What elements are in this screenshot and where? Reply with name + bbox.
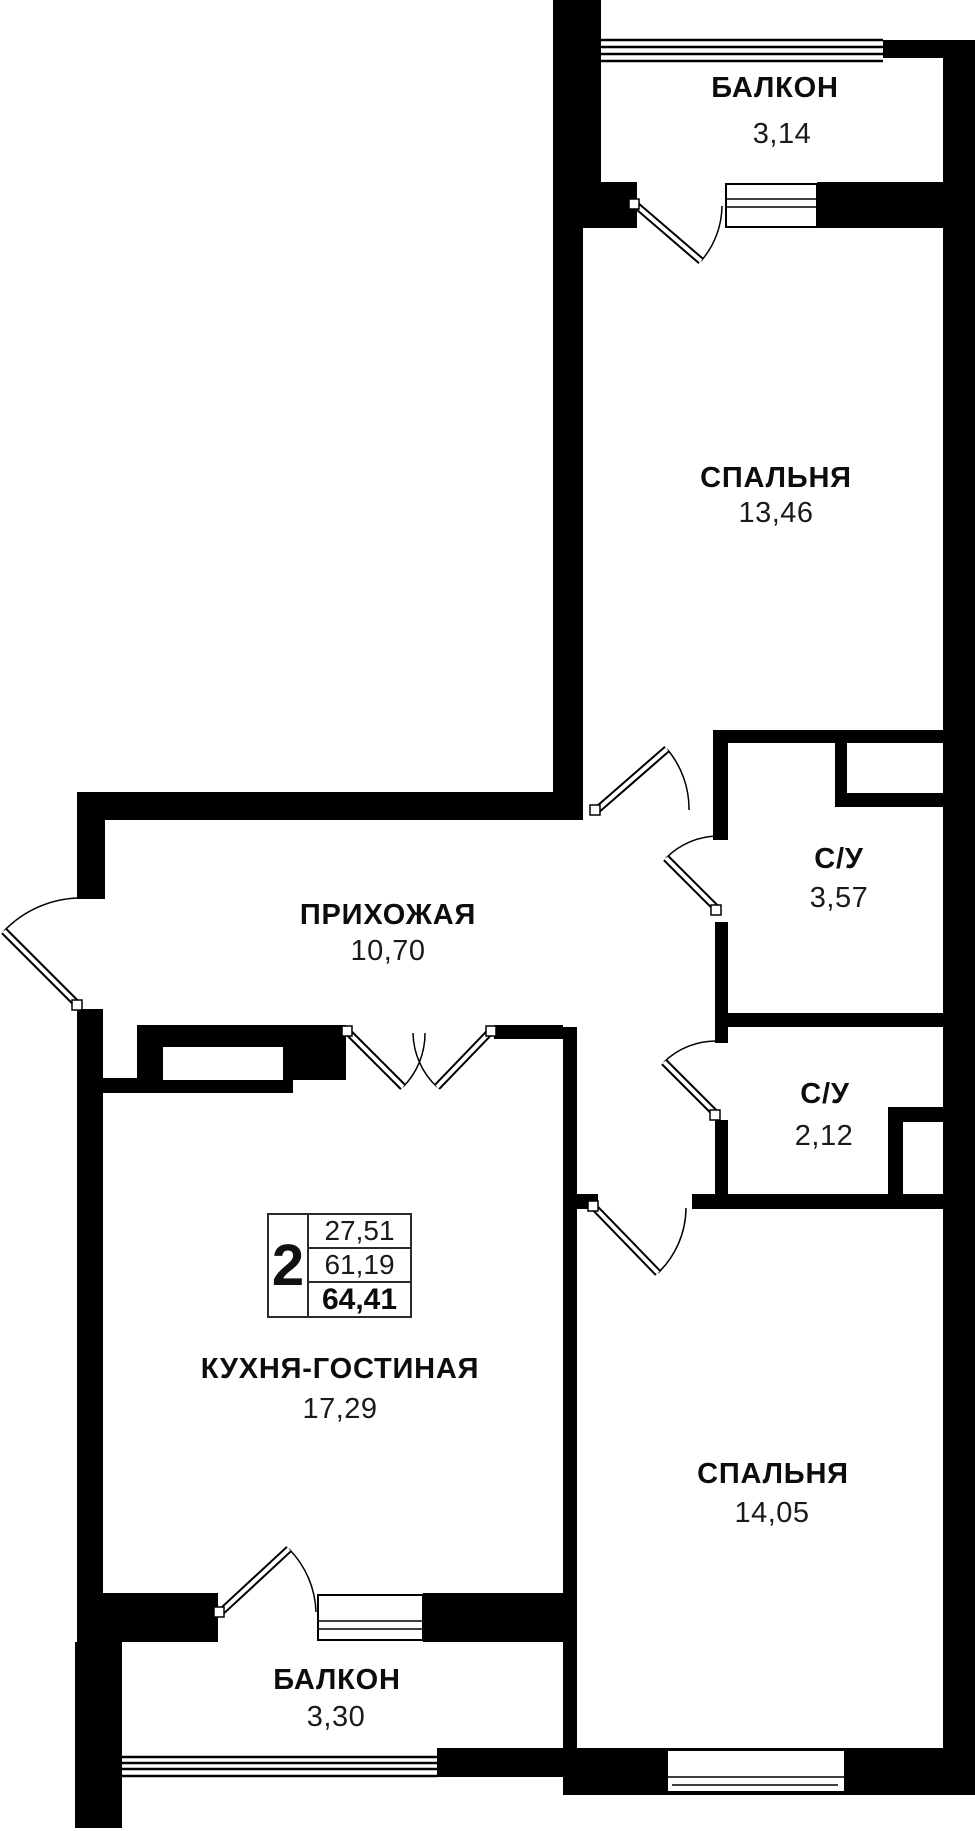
room-area-bathroom-2: 2,12 (795, 1122, 853, 1151)
door-bedroom-bottom (588, 1201, 686, 1273)
room-area-hallway: 10,70 (350, 937, 425, 966)
room-label-hallway: ПРИХОЖАЯ (300, 901, 476, 930)
room-area-bathroom-1: 3,57 (810, 884, 868, 913)
door-kitchen-double (342, 1026, 496, 1087)
room-area-balcony-top: 3,14 (753, 120, 811, 149)
legend-living-area: 27,51 (309, 1215, 410, 1247)
room-label-bathroom-1: С/У (814, 845, 863, 874)
door-balcony-top (629, 199, 722, 261)
room-area-bedroom-top: 13,46 (738, 499, 813, 528)
room-area-kitchen-living: 17,29 (302, 1395, 377, 1424)
window-bedroom-top (726, 184, 817, 227)
room-area-balcony-bottom: 3,30 (307, 1703, 365, 1732)
room-label-bedroom-top: СПАЛЬНЯ (700, 464, 852, 493)
door-balcony-bottom (214, 1549, 316, 1617)
window-kitchen (318, 1595, 423, 1640)
balcony-top-railing (601, 40, 883, 61)
walls (75, 0, 975, 1828)
room-label-bedroom-bottom: СПАЛЬНЯ (697, 1460, 849, 1489)
door-bathroom-1 (666, 836, 721, 915)
door-entry (4, 898, 82, 1010)
room-label-kitchen-living: КУХНЯ-ГОСТИНАЯ (201, 1355, 480, 1384)
area-legend: 2 27,51 61,19 64,41 (267, 1213, 412, 1318)
floor-plan: БАЛКОН 3,14 СПАЛЬНЯ 13,46 ПРИХОЖАЯ 10,70… (0, 0, 975, 1831)
room-area-bedroom-bottom: 14,05 (734, 1499, 809, 1528)
window-bedroom-bottom (667, 1750, 845, 1792)
room-label-balcony-bottom: БАЛКОН (273, 1666, 400, 1695)
room-label-balcony-top: БАЛКОН (711, 74, 838, 103)
door-bedroom-top (590, 749, 689, 815)
legend-total-area: 64,41 (309, 1281, 410, 1317)
floor-plan-svg (0, 0, 975, 1831)
room-label-bathroom-2: С/У (800, 1080, 849, 1109)
legend-rooms-count: 2 (269, 1215, 309, 1316)
door-bathroom-2 (664, 1041, 720, 1120)
balcony-bottom-railing (122, 1757, 437, 1776)
legend-area-no-balcony: 61,19 (309, 1247, 410, 1281)
